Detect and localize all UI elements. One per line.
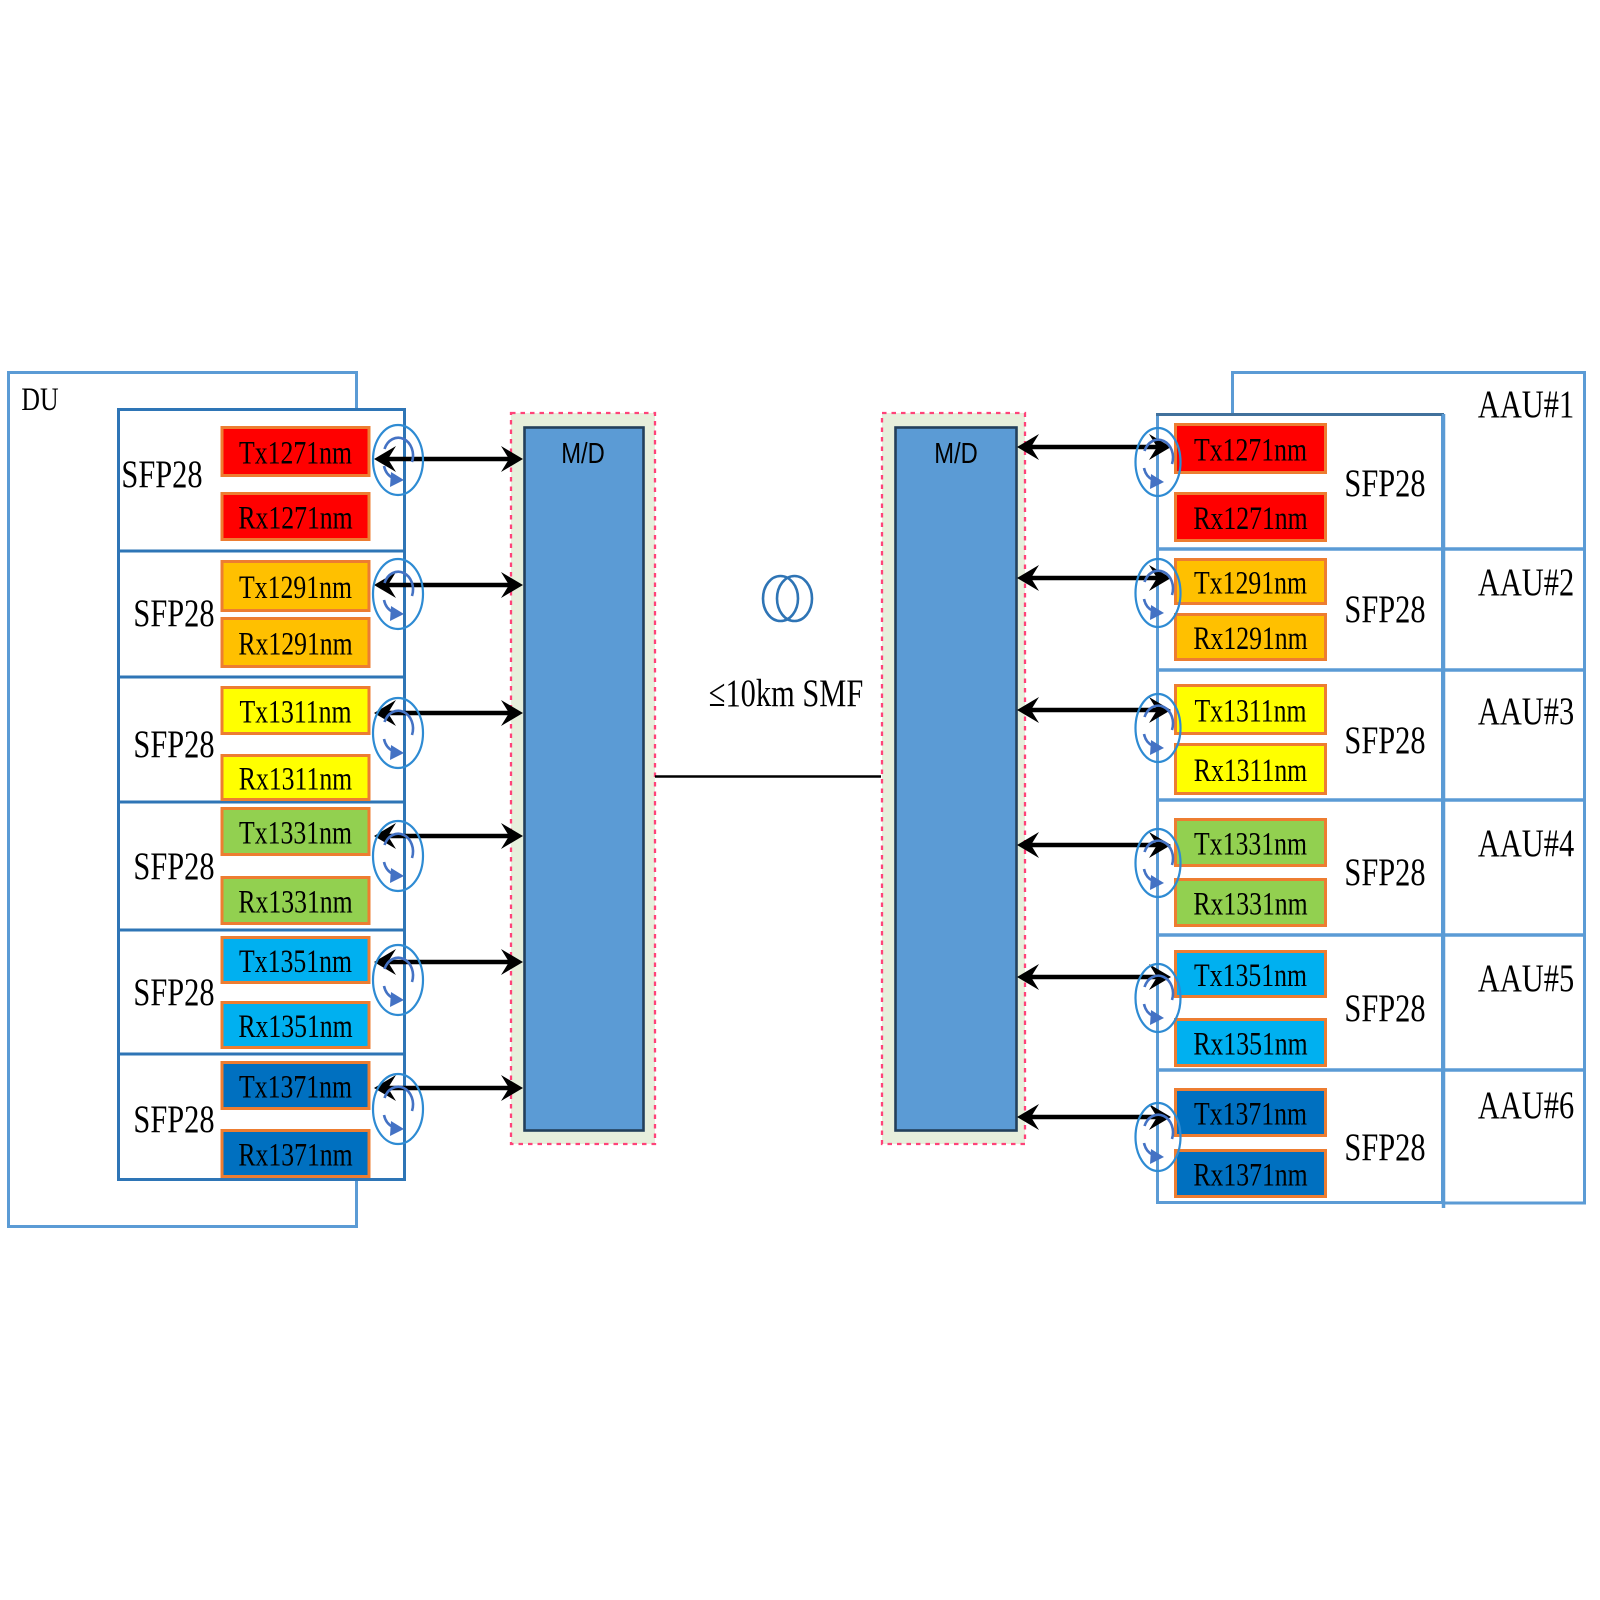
svg-text:Tx1351nm: Tx1351nm [1194, 958, 1307, 994]
svg-text:Tx1291nm: Tx1291nm [1194, 566, 1307, 602]
svg-text:AAU#2: AAU#2 [1478, 560, 1574, 603]
svg-text:SFP28: SFP28 [1344, 718, 1425, 761]
svg-text:AAU#6: AAU#6 [1478, 1083, 1574, 1126]
svg-text:SFP28: SFP28 [133, 970, 214, 1013]
svg-text:SFP28: SFP28 [133, 1097, 214, 1140]
svg-text:SFP28: SFP28 [1344, 986, 1425, 1029]
svg-text:Tx1311nm: Tx1311nm [1195, 694, 1307, 730]
svg-text:Rx1371nm: Rx1371nm [1193, 1158, 1307, 1194]
svg-text:AAU#5: AAU#5 [1478, 956, 1574, 999]
svg-text:SFP28: SFP28 [1344, 461, 1425, 504]
svg-text:Tx1271nm: Tx1271nm [1194, 433, 1307, 469]
svg-text:Rx1311nm: Rx1311nm [239, 762, 352, 798]
svg-text:SFP28: SFP28 [1344, 1125, 1425, 1168]
svg-text:SFP28: SFP28 [121, 452, 202, 495]
svg-text:Rx1271nm: Rx1271nm [238, 501, 352, 537]
svg-text:Rx1311nm: Rx1311nm [1194, 753, 1307, 789]
svg-text:Rx1331nm: Rx1331nm [238, 885, 352, 921]
svg-text:≤10km SMF: ≤10km SMF [709, 671, 863, 714]
svg-text:Tx1331nm: Tx1331nm [1194, 827, 1307, 863]
svg-text:DU: DU [21, 382, 58, 418]
svg-text:Rx1291nm: Rx1291nm [238, 627, 352, 663]
svg-text:AAU#4: AAU#4 [1478, 821, 1574, 864]
svg-text:Tx1311nm: Tx1311nm [240, 695, 352, 731]
svg-text:Tx1371nm: Tx1371nm [239, 1070, 352, 1106]
svg-text:M/D: M/D [934, 437, 978, 470]
svg-text:M/D: M/D [561, 437, 605, 470]
svg-text:SFP28: SFP28 [1344, 850, 1425, 893]
svg-text:Tx1351nm: Tx1351nm [239, 944, 352, 980]
svg-text:Tx1371nm: Tx1371nm [1194, 1097, 1307, 1133]
svg-text:AAU#1: AAU#1 [1478, 382, 1574, 425]
svg-text:Rx1351nm: Rx1351nm [1193, 1027, 1307, 1063]
svg-text:SFP28: SFP28 [133, 722, 214, 765]
svg-text:Rx1371nm: Rx1371nm [238, 1138, 352, 1174]
svg-text:Rx1351nm: Rx1351nm [238, 1009, 352, 1045]
svg-text:AAU#3: AAU#3 [1478, 689, 1574, 732]
svg-text:SFP28: SFP28 [133, 844, 214, 887]
svg-text:Rx1271nm: Rx1271nm [1193, 501, 1307, 537]
svg-text:Rx1331nm: Rx1331nm [1193, 887, 1307, 923]
svg-text:Tx1271nm: Tx1271nm [239, 436, 352, 472]
svg-text:Tx1291nm: Tx1291nm [239, 570, 352, 606]
svg-text:SFP28: SFP28 [133, 591, 214, 634]
svg-text:SFP28: SFP28 [1344, 587, 1425, 630]
svg-text:Tx1331nm: Tx1331nm [239, 816, 352, 852]
svg-text:Rx1291nm: Rx1291nm [1193, 621, 1307, 657]
